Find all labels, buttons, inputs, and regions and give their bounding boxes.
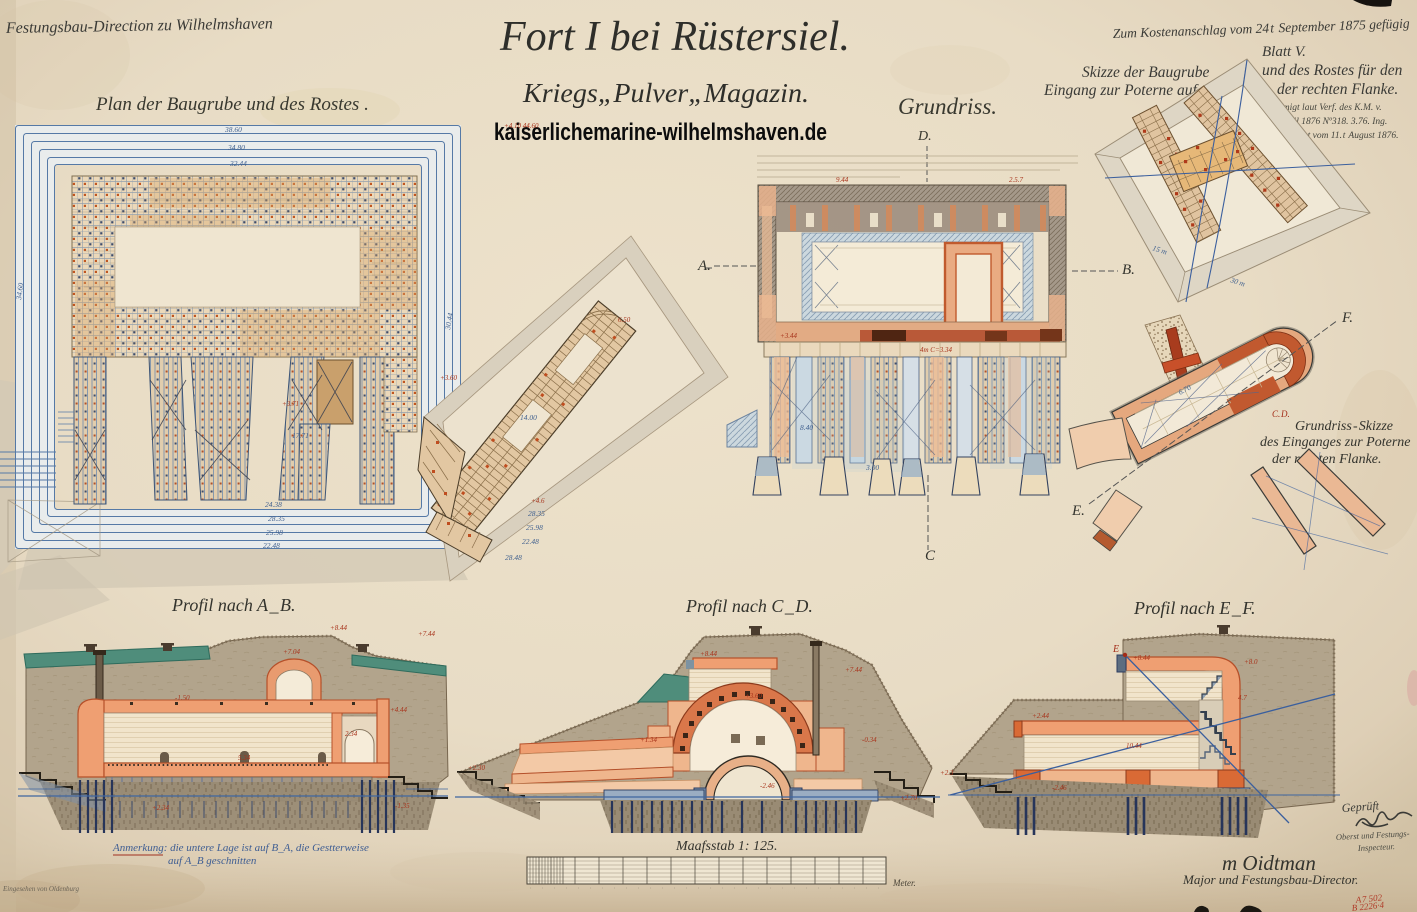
- svg-text:+2.44: +2.44: [1032, 712, 1049, 720]
- svg-text:2.5.7: 2.5.7: [1009, 176, 1024, 184]
- svg-text:+7.44: +7.44: [845, 666, 862, 674]
- svg-text:28.35: 28.35: [528, 509, 545, 518]
- svg-text:+2.30: +2.30: [468, 764, 485, 772]
- svg-text:E.: E.: [1071, 503, 1085, 519]
- svg-text:+7.04: +7.04: [283, 648, 300, 656]
- svg-text:Maafsstab 1: 125.: Maafsstab 1: 125.: [675, 839, 778, 854]
- svg-text:+8.44: +8.44: [1133, 654, 1150, 662]
- svg-text:-1.50: -1.50: [175, 694, 190, 702]
- svg-text:+4.44: +4.44: [390, 706, 407, 714]
- svg-text:25.98: 25.98: [526, 523, 543, 532]
- svg-text:38.60: 38.60: [224, 125, 242, 134]
- svg-text:Eingang zur Poterne auf: Eingang zur Poterne auf: [1043, 82, 1200, 99]
- svg-text:17.71: 17.71: [292, 431, 309, 440]
- svg-text:+8.44: +8.44: [700, 650, 717, 658]
- svg-text:Major und Festungsbau-Director: Major und Festungsbau-Director.: [1182, 872, 1358, 887]
- svg-text:+1.34: +1.34: [640, 736, 657, 744]
- svg-text:auf A_B geschnitten: auf A_B geschnitten: [168, 855, 257, 867]
- svg-text:und des Rostes für den: und des Rostes für den: [1262, 62, 1403, 79]
- svg-text:2.34: 2.34: [345, 730, 358, 738]
- svg-text:-2.46: -2.46: [1052, 784, 1067, 792]
- svg-text:A.: A.: [697, 258, 711, 274]
- svg-text:der rechten Flanke.: der rechten Flanke.: [1277, 81, 1398, 98]
- svg-text:9.44: 9.44: [836, 176, 849, 184]
- svg-text:+4.10 44.60: +4.10 44.60: [504, 122, 539, 130]
- svg-text:4m C=3.34: 4m C=3.34: [920, 346, 952, 354]
- svg-text:Profil nach C _ D.: Profil nach C _ D.: [685, 596, 813, 616]
- svg-text:kaiserlichemarine-wilhelmshave: kaiserlichemarine-wilhelmshaven.de: [494, 119, 827, 146]
- svg-text:+2.34: +2.34: [152, 804, 169, 812]
- svg-text:der rechten Flanke.: der rechten Flanke.: [1272, 452, 1382, 467]
- svg-text:14.00: 14.00: [520, 413, 537, 422]
- svg-text:6.50: 6.50: [618, 316, 631, 324]
- svg-text:+3.60: +3.60: [745, 692, 762, 700]
- svg-text:Eingesehen von Oldenburg: Eingesehen von Oldenburg: [2, 885, 79, 893]
- svg-text:+2.3: +2.3: [940, 769, 954, 777]
- svg-text:Grundriss.: Grundriss.: [898, 94, 997, 119]
- svg-text:-2.46: -2.46: [760, 782, 775, 790]
- svg-text:+8.44: +8.44: [330, 624, 347, 632]
- svg-text:34.80: 34.80: [227, 143, 245, 152]
- svg-text:+3.71: +3.71: [282, 400, 299, 408]
- svg-text:22.48: 22.48: [522, 537, 539, 546]
- svg-text:C. D.: C. D.: [1272, 409, 1290, 419]
- svg-text:Fort I bei Rüstersiel.: Fort I bei Rüstersiel.: [499, 14, 850, 60]
- svg-text:28.48: 28.48: [505, 553, 522, 562]
- svg-text:D.: D.: [917, 129, 932, 144]
- svg-text:des Einganges zur Poterne: des Einganges zur Poterne: [1260, 435, 1410, 450]
- svg-text:Grundriss - Skizze: Grundriss - Skizze: [1295, 419, 1393, 434]
- svg-text:B.: B.: [1122, 262, 1135, 278]
- svg-text:+3.60: +3.60: [440, 374, 457, 382]
- svg-text:-0.34: -0.34: [862, 736, 877, 744]
- svg-text:C: C: [925, 548, 936, 564]
- svg-text:Inspecteur.: Inspecteur.: [1357, 841, 1396, 853]
- svg-text:Profil nach E _ F.: Profil nach E _ F.: [1133, 598, 1256, 618]
- svg-text:5.34: 5.34: [238, 754, 251, 762]
- svg-text:Plan der Baugrube und des Rost: Plan der Baugrube und des Rostes .: [95, 94, 369, 115]
- svg-text:+2.70: +2.70: [900, 794, 917, 802]
- svg-text:Kriegs„Pulver„Magazin.: Kriegs„Pulver„Magazin.: [522, 78, 809, 108]
- svg-text:+3.44: +3.44: [780, 332, 797, 340]
- svg-text:Blatt V.: Blatt V.: [1262, 44, 1306, 60]
- svg-text:3.00: 3.00: [865, 463, 879, 472]
- svg-text:F.: F.: [1341, 310, 1353, 326]
- svg-text:10.44: 10.44: [1126, 742, 1142, 750]
- svg-text:Meter.: Meter.: [892, 878, 916, 888]
- svg-text:Anmerkung: die untere Lage is: Anmerkung: die untere Lage ist auf B_A, …: [112, 842, 369, 854]
- svg-text:24.38: 24.38: [265, 500, 282, 509]
- svg-text:22.48: 22.48: [263, 541, 280, 550]
- svg-text:8.40: 8.40: [800, 423, 813, 432]
- svg-text:4.7: 4.7: [1238, 694, 1247, 702]
- svg-text:Profil nach A _ B.: Profil nach A _ B.: [171, 595, 296, 615]
- svg-text:32.44: 32.44: [229, 159, 247, 168]
- svg-text:25.98: 25.98: [266, 528, 283, 537]
- svg-text:Skizze der Baugrube: Skizze der Baugrube: [1082, 64, 1210, 81]
- svg-text:+8.0: +8.0: [1244, 658, 1258, 666]
- svg-text:-1.35: -1.35: [395, 802, 410, 810]
- svg-text:E: E: [1112, 644, 1119, 655]
- svg-text:+7.44: +7.44: [418, 630, 435, 638]
- svg-text:28.35: 28.35: [268, 514, 285, 523]
- svg-text:+4.6: +4.6: [531, 497, 545, 505]
- svg-text:Geprüft: Geprüft: [1341, 798, 1380, 815]
